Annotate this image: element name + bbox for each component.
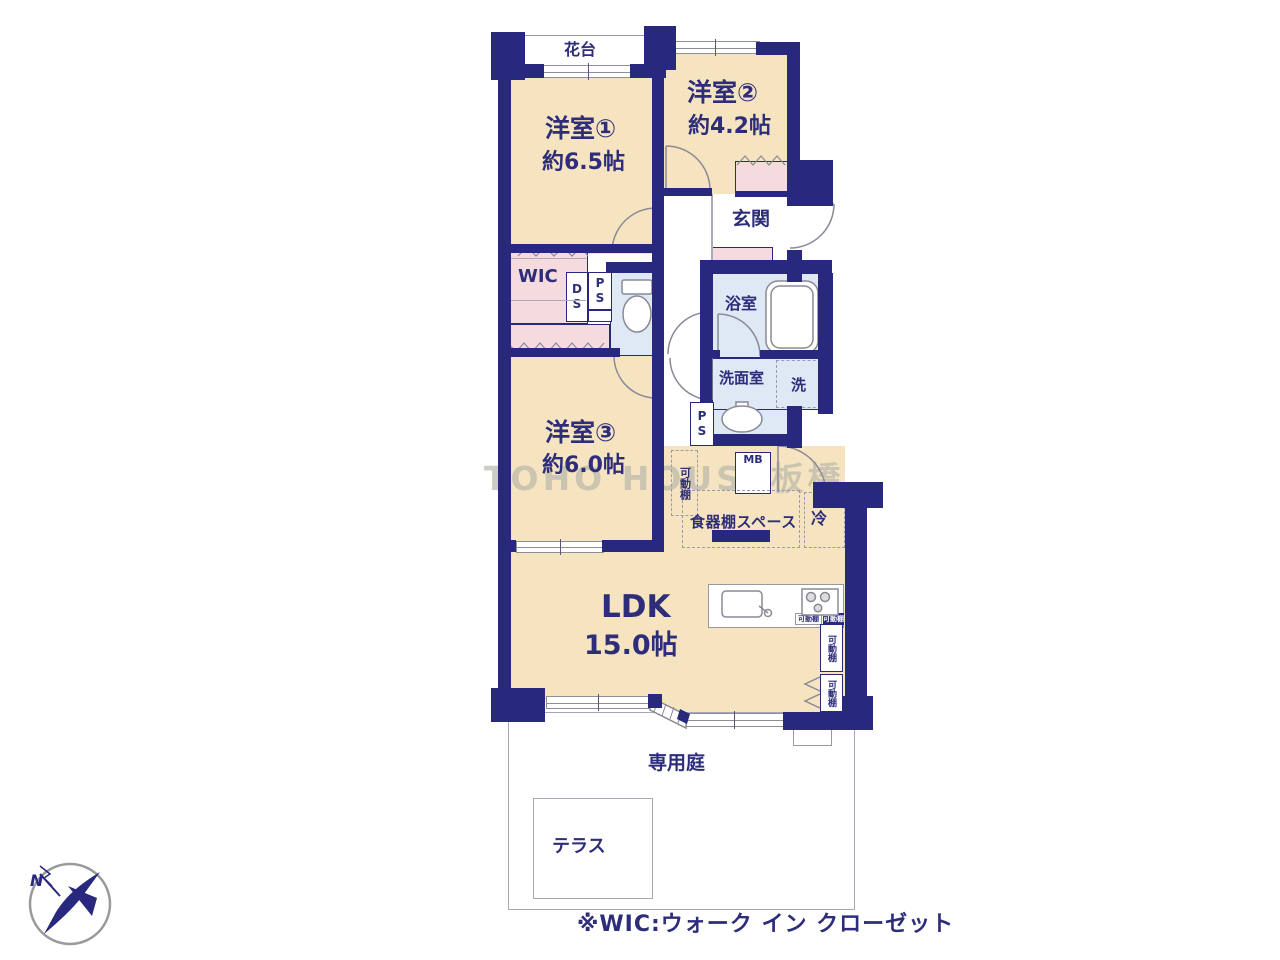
ldk-label: LDK: [601, 592, 671, 623]
wall-left: [498, 64, 511, 704]
wall: [787, 406, 802, 448]
private-garden-label: 専用庭: [648, 754, 705, 773]
flower-stand-label: 花台: [564, 42, 596, 58]
wall: [843, 696, 873, 730]
bedroom2-window: [670, 41, 760, 54]
ldk-window-left: [546, 696, 650, 709]
pipe-space-sub-box: [588, 310, 612, 322]
bedroom2-label: 洋室②: [687, 80, 758, 105]
compass-needle: [40, 874, 60, 896]
bedroom1-area-label: 約6.5帖: [542, 152, 625, 174]
wic-hanger-line-2: [508, 300, 586, 301]
meter-box: MB: [735, 452, 771, 494]
movable-shelf-right-2: 可動棚: [820, 674, 843, 712]
wall: [606, 262, 664, 272]
wall: [652, 58, 664, 254]
wall: [652, 254, 664, 544]
washstand-area: [713, 410, 793, 436]
bathroom-label: 浴室: [725, 296, 757, 312]
compass-needle-zigzag: [40, 866, 52, 886]
wall-kitchen-stub: [712, 530, 770, 542]
bedroom3-label: 洋室③: [545, 420, 616, 445]
ldk-area-label: 15.0帖: [584, 632, 678, 659]
ldk-window-right: [684, 713, 784, 727]
wall-entrance-pillar: [787, 160, 833, 206]
wic-hanger-line-1: [508, 258, 586, 259]
dish-shelf-space-label: 食器棚スペース: [690, 515, 797, 530]
wall: [498, 540, 516, 552]
compass: N: [30, 864, 110, 944]
wall: [845, 508, 867, 714]
wall: [702, 260, 832, 273]
pipe-space-box: PS: [588, 272, 612, 310]
washer-space-box: 洗: [776, 360, 821, 408]
movable-shelf-right-1: 可動棚: [820, 624, 843, 672]
compass-bird-wing: [68, 886, 97, 916]
entrance-door-arc: [790, 204, 834, 248]
wic-label: WIC: [518, 268, 558, 286]
terrace-label: テラス: [552, 838, 606, 856]
wall: [664, 188, 712, 196]
wall: [498, 244, 664, 253]
kitchen-shelf-tag-1: 可動棚: [795, 613, 822, 625]
bedroom3-floor: [510, 354, 658, 548]
floor-plan: TOHO HOUSE板橋 DS PS PS MB 可動棚 可動棚 可動棚 可動棚…: [0, 0, 1280, 960]
pipe-space-box-2: PS: [690, 402, 714, 446]
entrance-step-line: [711, 194, 713, 262]
entrance-label: 玄関: [732, 210, 770, 229]
movable-shelf-hall-box: 可動棚: [671, 450, 698, 516]
flower-stand-window: [542, 65, 634, 78]
fridge-label: 冷: [811, 511, 827, 527]
wall: [760, 350, 820, 358]
wall: [787, 42, 800, 164]
compass-north-label: N: [30, 871, 44, 890]
wall: [818, 273, 833, 414]
wall: [648, 694, 662, 708]
bedroom3-area-label: 約6.0帖: [542, 455, 625, 477]
bedroom2-closet: [735, 161, 788, 192]
compass-ring: [30, 864, 110, 944]
wall: [783, 712, 845, 730]
wall-t-bar: [813, 482, 883, 508]
wic-note: ※WIC:ウォーク イン クローゼット: [577, 914, 954, 936]
wall: [700, 434, 796, 446]
washroom-label: 洗面室: [719, 371, 764, 386]
wall: [712, 350, 720, 358]
wall: [498, 348, 620, 357]
wall: [602, 540, 664, 552]
bedroom3-sliding-door: [516, 541, 604, 553]
wall: [662, 42, 674, 55]
bedroom1-label: 洋室①: [545, 116, 616, 141]
bathroom-floor: [712, 273, 820, 358]
bedroom2-area-label: 約4.2帖: [688, 116, 771, 138]
wall: [735, 192, 788, 197]
compass-bird: [44, 872, 100, 934]
duct-space-box: DS: [566, 272, 588, 322]
